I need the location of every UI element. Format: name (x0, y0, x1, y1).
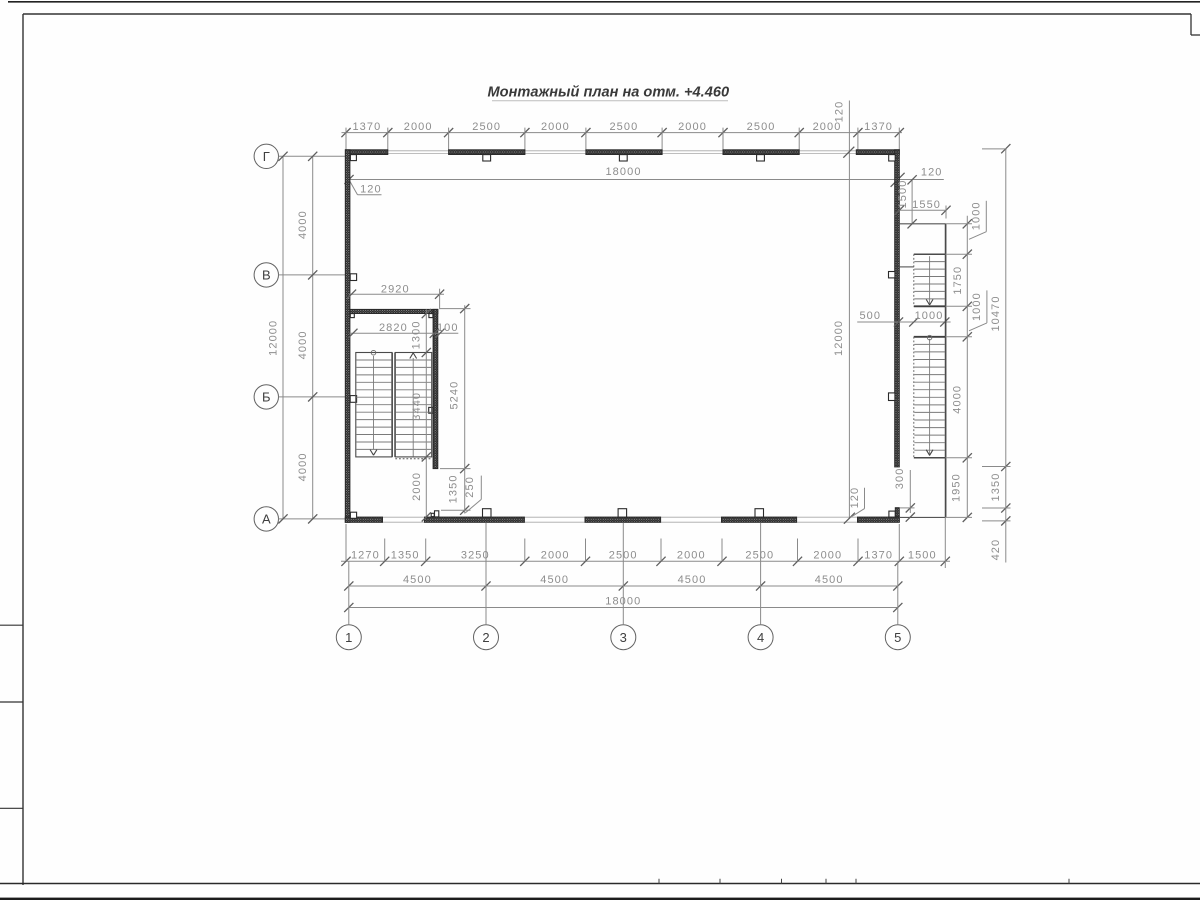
svg-text:3: 3 (620, 630, 627, 645)
svg-text:4500: 4500 (678, 574, 707, 586)
svg-text:100: 100 (437, 322, 459, 334)
svg-text:Б: Б (262, 390, 271, 405)
svg-text:120: 120 (360, 184, 382, 196)
svg-text:10470: 10470 (990, 295, 1002, 331)
svg-text:2000: 2000 (678, 121, 707, 133)
svg-text:1350: 1350 (990, 473, 1002, 502)
svg-text:1950: 1950 (950, 473, 962, 502)
svg-text:2000: 2000 (541, 549, 570, 561)
svg-text:1: 1 (345, 630, 352, 645)
svg-text:2000: 2000 (541, 121, 570, 133)
svg-text:2500: 2500 (747, 121, 776, 133)
svg-text:2500: 2500 (745, 549, 774, 561)
svg-text:3440: 3440 (411, 392, 423, 421)
svg-text:2000: 2000 (813, 549, 842, 561)
svg-text:2500: 2500 (472, 121, 501, 133)
svg-text:18000: 18000 (605, 166, 641, 178)
svg-text:1500: 1500 (908, 549, 937, 561)
svg-text:1350: 1350 (391, 549, 420, 561)
svg-text:2: 2 (482, 630, 489, 645)
svg-text:3250: 3250 (461, 549, 490, 561)
svg-text:120: 120 (833, 101, 845, 123)
svg-text:1370: 1370 (864, 121, 893, 133)
svg-text:1370: 1370 (352, 121, 381, 133)
svg-text:Монтажный план на отм. +4.460: Монтажный план на отм. +4.460 (488, 85, 730, 101)
svg-text:4500: 4500 (540, 574, 569, 586)
svg-text:4500: 4500 (403, 574, 432, 586)
svg-text:250: 250 (464, 476, 476, 498)
svg-text:В: В (262, 268, 271, 283)
svg-text:1550: 1550 (912, 199, 941, 211)
svg-text:1300: 1300 (410, 320, 422, 349)
svg-text:4000: 4000 (297, 452, 309, 481)
svg-text:2000: 2000 (404, 121, 433, 133)
svg-text:1750: 1750 (952, 266, 964, 295)
svg-text:5240: 5240 (448, 381, 460, 410)
svg-text:1370: 1370 (864, 549, 893, 561)
svg-text:1000: 1000 (971, 292, 983, 321)
svg-text:2920: 2920 (381, 283, 410, 295)
svg-text:4000: 4000 (297, 210, 309, 239)
svg-text:4000: 4000 (297, 330, 309, 359)
svg-text:1000: 1000 (915, 310, 944, 322)
svg-text:1270: 1270 (351, 549, 380, 561)
svg-text:420: 420 (990, 539, 1002, 561)
svg-text:4: 4 (757, 630, 764, 645)
svg-text:Г: Г (263, 149, 270, 164)
svg-text:12000: 12000 (268, 320, 280, 356)
svg-text:500: 500 (859, 310, 881, 322)
svg-text:120: 120 (849, 487, 861, 509)
svg-text:1500: 1500 (897, 180, 909, 209)
svg-text:12000: 12000 (833, 320, 845, 356)
svg-text:4500: 4500 (815, 574, 844, 586)
svg-text:5: 5 (894, 630, 901, 645)
svg-text:2000: 2000 (411, 472, 423, 501)
svg-text:120: 120 (921, 167, 943, 179)
svg-text:4000: 4000 (951, 385, 963, 414)
svg-text:2820: 2820 (379, 322, 408, 334)
svg-text:1350: 1350 (448, 474, 460, 503)
svg-text:2500: 2500 (609, 121, 638, 133)
svg-text:А: А (262, 512, 271, 527)
svg-text:2000: 2000 (677, 549, 706, 561)
svg-text:1000: 1000 (970, 201, 982, 230)
svg-text:300: 300 (894, 468, 906, 490)
